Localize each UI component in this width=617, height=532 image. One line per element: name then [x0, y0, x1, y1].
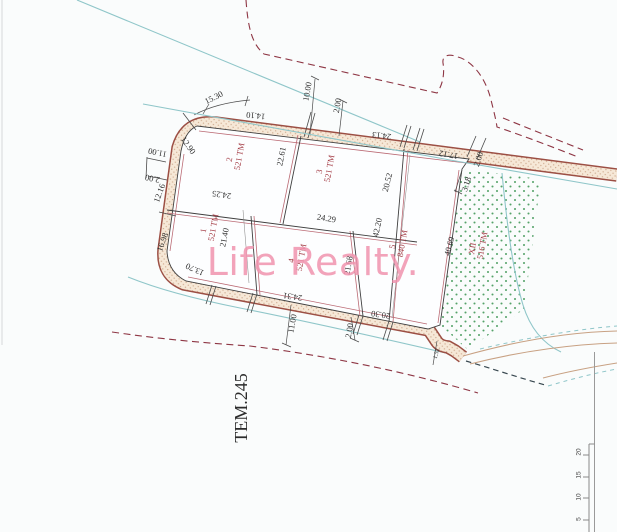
parcel-reference-label: ΤΕΜ.245 [231, 373, 251, 443]
watermark-text: Life Realty. [207, 240, 420, 284]
scale-tick-label: 15 [576, 471, 583, 479]
scale-tick-label: 20 [576, 448, 583, 456]
scale-tick-label: 5 [576, 517, 583, 521]
scale-tick-label: 10 [576, 493, 583, 501]
survey-plan-drawing: 2015105 15.3014.1010.002.0024.1317.122.0… [0, 0, 617, 532]
cadastral-plan-canvas: 2015105 15.3014.1010.002.0024.1317.122.0… [0, 0, 617, 532]
dimension-label: 14.10 [246, 110, 266, 122]
